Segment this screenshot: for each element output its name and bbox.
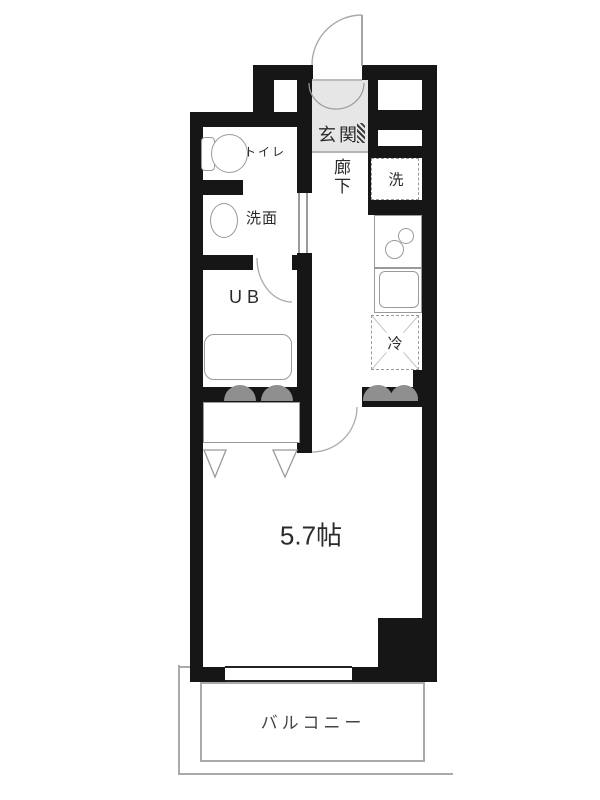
wall-bottom-left xyxy=(190,667,225,682)
wall-toilet-top xyxy=(192,112,297,127)
entrance-threshold-line xyxy=(312,79,362,81)
genkan-step-line xyxy=(312,151,368,153)
outer-boundary-bottom-line xyxy=(178,773,453,775)
washroom-sliding-door-line-1 xyxy=(298,193,300,253)
bathtub xyxy=(204,334,292,380)
wall-below-fridge xyxy=(413,370,437,387)
toilet-bowl xyxy=(211,134,248,173)
wall-washroom-bath-divider-left xyxy=(192,255,253,270)
label-hallway: 廊下 xyxy=(328,158,353,196)
label-main-room-size: 5.7帖 xyxy=(280,516,342,553)
hanger-triangle-2 xyxy=(273,450,297,477)
label-washer: 洗 xyxy=(388,169,403,190)
outer-boundary-left-line xyxy=(178,665,180,775)
room-door-arc xyxy=(312,407,357,452)
label-balcony: バルコニー xyxy=(261,709,366,734)
wall-meter-box-divider-2 xyxy=(368,146,422,158)
label-unit-bath: UB xyxy=(229,287,264,308)
kitchen-counter-divider xyxy=(374,267,422,269)
kitchen-sink xyxy=(379,271,419,308)
wall-meter-box-divider-1 xyxy=(368,110,422,130)
label-fridge: 冷 xyxy=(386,333,403,354)
wall-stub-top xyxy=(253,65,274,113)
wall-toilet-washroom-divider xyxy=(192,180,243,195)
wall-corner-pillar xyxy=(378,618,423,682)
wall-genkan-left xyxy=(297,80,312,193)
hanger-triangle-1 xyxy=(204,450,226,477)
washroom-sliding-door-line-2 xyxy=(306,193,308,253)
balcony-window xyxy=(225,666,352,682)
wall-washer-kitchen-divider xyxy=(368,200,422,215)
closet xyxy=(203,402,300,443)
label-washroom: 洗面 xyxy=(246,207,278,228)
label-toilet: トイレ xyxy=(244,143,286,160)
label-genkan: 玄関 xyxy=(318,121,360,147)
stove-burner-large xyxy=(385,240,404,259)
wall-washroom-bath-divider-right xyxy=(292,255,312,270)
entrance-door-arc xyxy=(312,15,362,65)
washbasin xyxy=(210,203,238,238)
floor-plan-canvas: 玄関 廊下 トイレ 洗面 UB 洗 冷 5.7帖 バルコニー xyxy=(0,0,600,800)
